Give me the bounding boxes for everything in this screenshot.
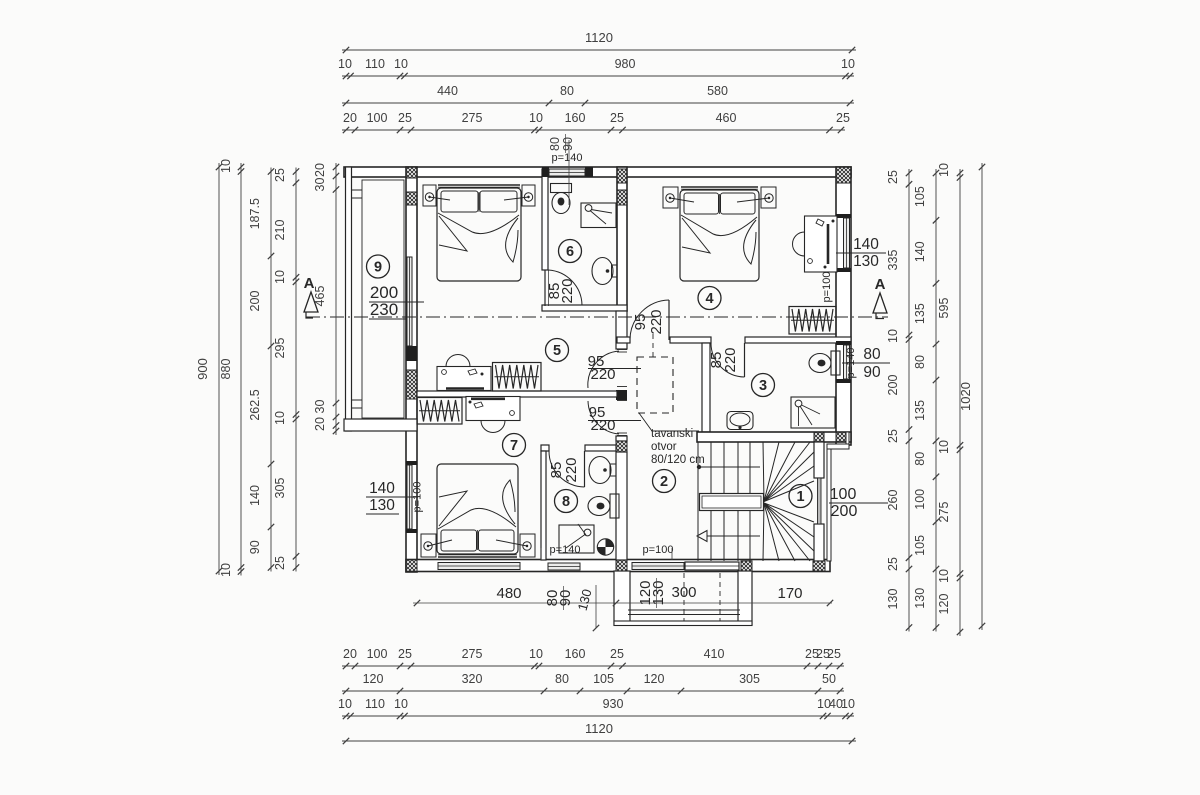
svg-text:20: 20 [343, 111, 357, 125]
svg-text:160: 160 [565, 111, 586, 125]
svg-text:p=140: p=140 [552, 152, 583, 164]
svg-text:10: 10 [529, 647, 543, 661]
svg-text:220: 220 [559, 278, 576, 303]
svg-text:120: 120 [937, 594, 951, 615]
svg-text:100: 100 [367, 111, 388, 125]
svg-text:10: 10 [529, 111, 543, 125]
svg-text:10: 10 [841, 697, 855, 711]
svg-text:tavanski: tavanski [651, 428, 693, 440]
svg-text:140: 140 [248, 485, 262, 506]
svg-text:25: 25 [886, 557, 900, 571]
svg-text:295: 295 [273, 338, 287, 359]
svg-text:p=100: p=100 [412, 482, 424, 513]
svg-text:275: 275 [462, 647, 483, 661]
svg-text:90: 90 [561, 137, 575, 151]
svg-text:980: 980 [615, 57, 636, 71]
svg-text:140: 140 [853, 236, 879, 253]
svg-text:25: 25 [273, 168, 287, 182]
svg-text:200: 200 [886, 375, 900, 396]
svg-text:480: 480 [496, 585, 521, 602]
svg-text:80: 80 [560, 84, 574, 98]
svg-text:25: 25 [836, 111, 850, 125]
svg-text:160: 160 [565, 647, 586, 661]
svg-text:10: 10 [219, 159, 233, 173]
svg-text:300: 300 [671, 584, 696, 601]
svg-text:30: 30 [313, 400, 327, 414]
svg-text:220: 220 [722, 347, 739, 372]
svg-text:10: 10 [394, 57, 408, 71]
svg-text:230: 230 [370, 300, 398, 319]
svg-text:25: 25 [610, 647, 624, 661]
svg-text:25: 25 [398, 647, 412, 661]
svg-text:80: 80 [548, 137, 562, 151]
svg-text:80: 80 [555, 672, 569, 686]
svg-text:10: 10 [394, 697, 408, 711]
svg-text:460: 460 [716, 111, 737, 125]
svg-text:80/120 cm: 80/120 cm [651, 454, 705, 466]
svg-text:80: 80 [863, 346, 881, 363]
svg-text:10: 10 [273, 411, 287, 425]
svg-text:10: 10 [219, 563, 233, 577]
svg-text:80: 80 [913, 355, 927, 369]
svg-text:120: 120 [644, 672, 665, 686]
svg-text:260: 260 [886, 490, 900, 511]
svg-text:900: 900 [195, 358, 210, 380]
svg-text:130: 130 [913, 588, 927, 609]
svg-text:100: 100 [367, 647, 388, 661]
svg-text:120: 120 [363, 672, 384, 686]
svg-text:10: 10 [338, 57, 352, 71]
svg-text:10: 10 [937, 163, 951, 177]
svg-text:10: 10 [937, 440, 951, 454]
svg-text:1020: 1020 [958, 382, 973, 411]
svg-text:220: 220 [648, 309, 665, 334]
svg-text:220: 220 [563, 457, 580, 482]
svg-text:187.5: 187.5 [248, 198, 262, 229]
svg-text:210: 210 [273, 220, 287, 241]
svg-text:140: 140 [913, 241, 927, 262]
svg-text:A: A [875, 276, 886, 293]
svg-text:130: 130 [886, 589, 900, 610]
svg-text:140: 140 [369, 480, 395, 497]
svg-text:30: 30 [313, 178, 327, 192]
svg-text:135: 135 [913, 400, 927, 421]
svg-text:100: 100 [830, 486, 857, 503]
svg-text:20: 20 [313, 417, 327, 431]
svg-text:930: 930 [603, 697, 624, 711]
svg-text:220: 220 [590, 417, 615, 434]
svg-text:9: 9 [374, 260, 382, 276]
svg-text:105: 105 [913, 186, 927, 207]
svg-text:otvor: otvor [651, 441, 677, 453]
svg-text:100: 100 [913, 489, 927, 510]
svg-text:90: 90 [557, 590, 574, 607]
svg-text:410: 410 [704, 647, 725, 661]
svg-text:p=140: p=140 [550, 544, 581, 556]
svg-text:7: 7 [510, 438, 518, 454]
svg-text:595: 595 [937, 298, 951, 319]
svg-text:50: 50 [822, 672, 836, 686]
svg-text:25: 25 [398, 111, 412, 125]
svg-text:440: 440 [437, 84, 458, 98]
svg-text:90: 90 [248, 540, 262, 554]
svg-text:20: 20 [343, 647, 357, 661]
svg-text:305: 305 [739, 672, 760, 686]
svg-text:130: 130 [853, 253, 879, 270]
svg-text:110: 110 [365, 697, 385, 711]
svg-text:305: 305 [273, 478, 287, 499]
svg-text:275: 275 [937, 502, 951, 523]
svg-text:90: 90 [863, 364, 881, 381]
svg-text:p=100: p=100 [643, 544, 674, 556]
svg-text:3: 3 [759, 378, 767, 394]
svg-text:130: 130 [650, 580, 667, 605]
svg-text:105: 105 [913, 535, 927, 556]
svg-text:8: 8 [562, 494, 570, 510]
svg-text:320: 320 [462, 672, 483, 686]
svg-text:25: 25 [610, 111, 624, 125]
svg-text:10: 10 [273, 270, 287, 284]
svg-text:25: 25 [827, 647, 841, 661]
svg-text:20: 20 [313, 163, 327, 177]
svg-text:105: 105 [593, 672, 614, 686]
svg-text:170: 170 [777, 585, 802, 602]
svg-text:2: 2 [660, 474, 668, 490]
svg-text:275: 275 [462, 111, 483, 125]
svg-text:10: 10 [338, 697, 352, 711]
svg-text:10: 10 [841, 57, 855, 71]
svg-text:262.5: 262.5 [248, 389, 262, 420]
svg-text:580: 580 [707, 84, 728, 98]
svg-text:200: 200 [248, 291, 262, 312]
svg-text:25: 25 [886, 429, 900, 443]
svg-text:5: 5 [553, 343, 561, 359]
svg-text:25: 25 [886, 170, 900, 184]
svg-text:4: 4 [705, 291, 713, 307]
svg-text:95: 95 [632, 314, 649, 331]
svg-text:6: 6 [566, 244, 574, 260]
svg-text:880: 880 [219, 359, 233, 380]
svg-text:80: 80 [913, 452, 927, 466]
svg-text:p=140: p=140 [845, 348, 857, 379]
svg-text:1120: 1120 [585, 721, 613, 736]
svg-text:25: 25 [273, 556, 287, 570]
svg-text:p=100: p=100 [821, 272, 833, 303]
svg-text:110: 110 [365, 57, 385, 71]
svg-text:10: 10 [886, 329, 900, 343]
svg-text:200: 200 [831, 503, 858, 520]
svg-text:1120: 1120 [585, 30, 613, 45]
svg-text:335: 335 [886, 250, 900, 271]
svg-text:130: 130 [369, 497, 395, 514]
svg-text:135: 135 [913, 303, 927, 324]
svg-text:10: 10 [937, 569, 951, 583]
svg-text:1: 1 [796, 489, 804, 505]
svg-text:465: 465 [313, 286, 327, 307]
